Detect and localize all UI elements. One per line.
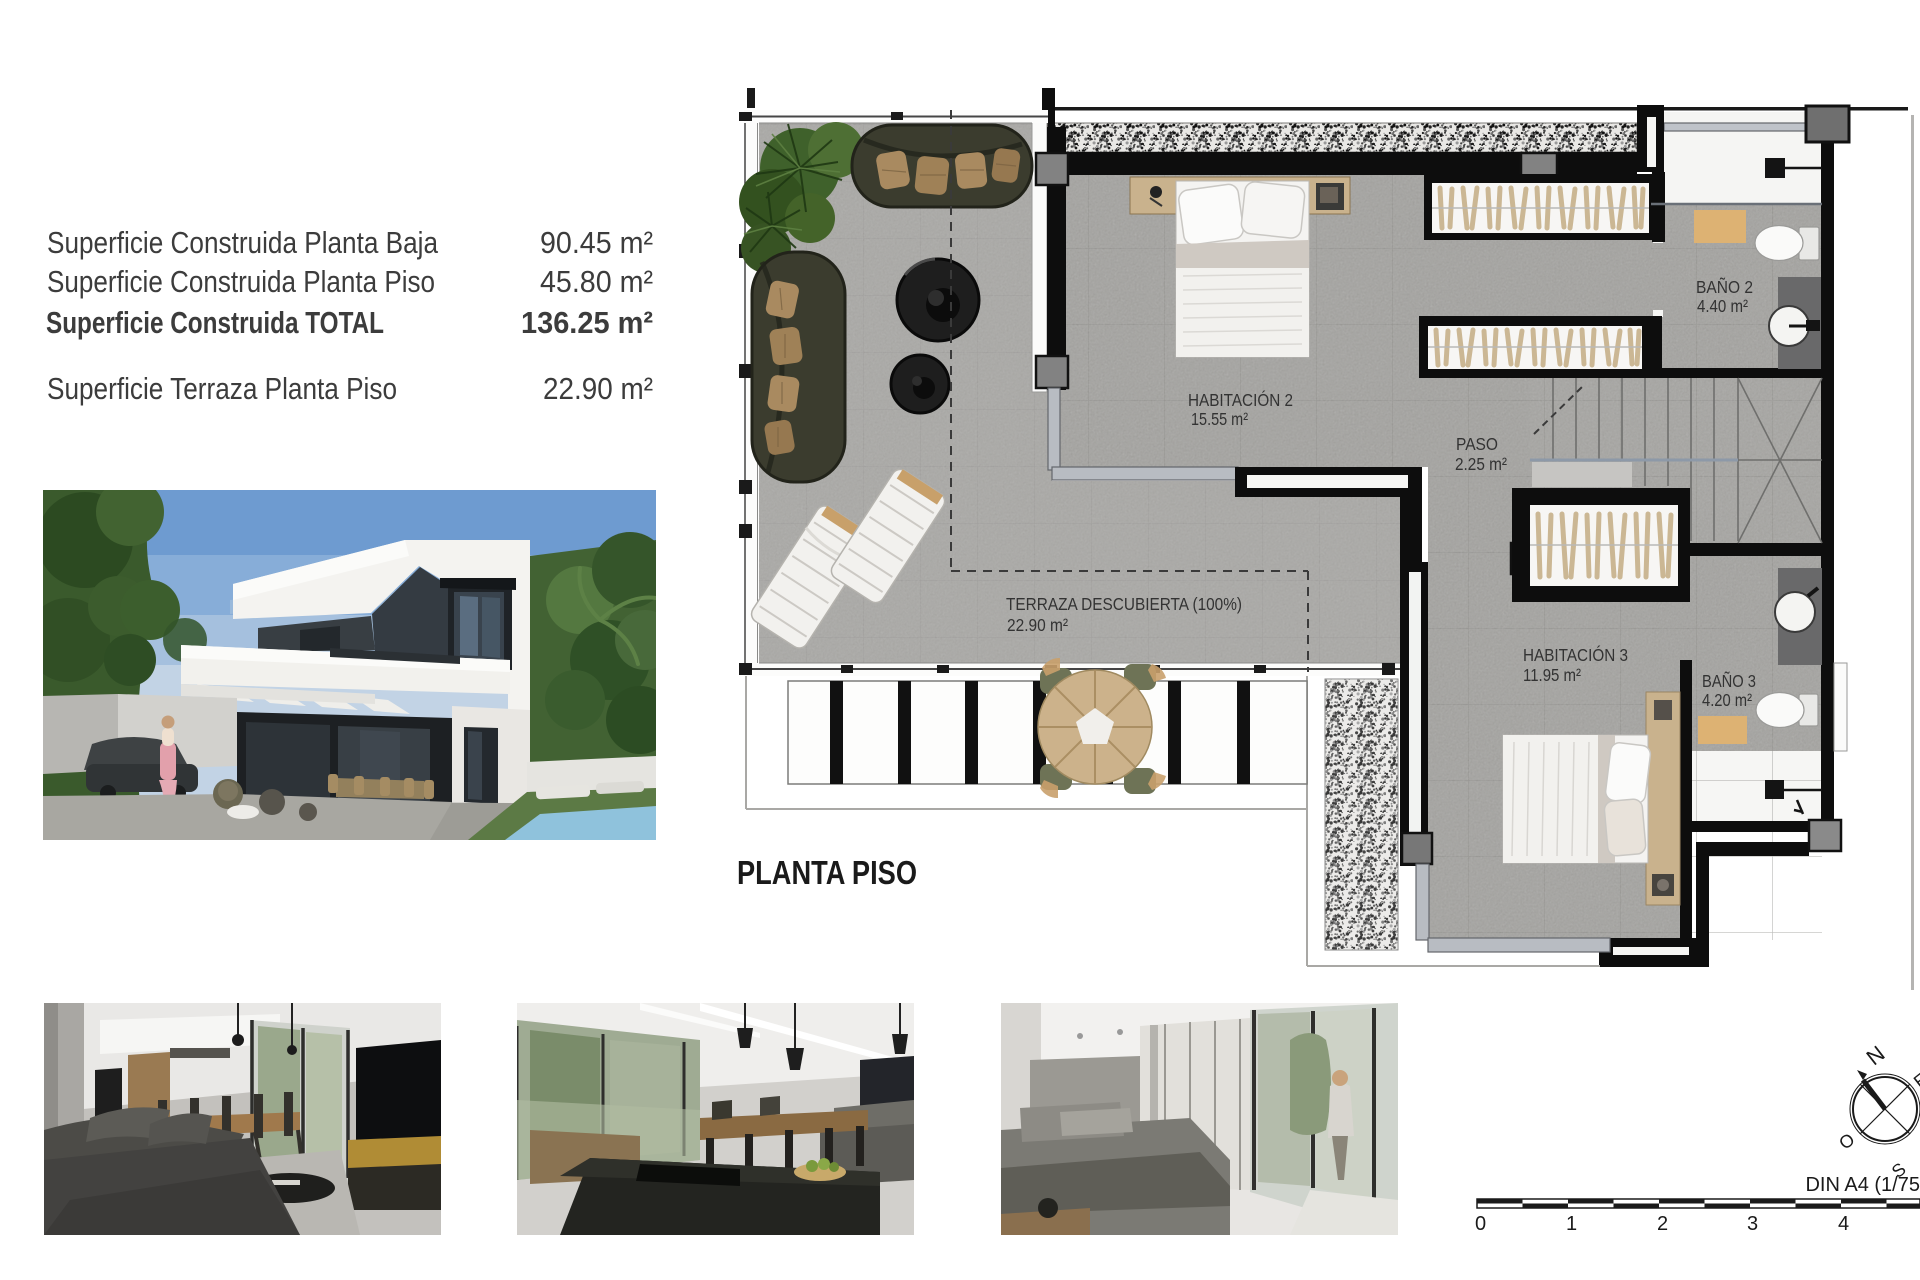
svg-text:4: 4 (1838, 1213, 1849, 1235)
svg-text:PASO: PASO (1456, 434, 1498, 454)
svg-text:2.25 m²: 2.25 m² (1455, 454, 1507, 474)
svg-text:45.80 m²: 45.80 m² (540, 264, 653, 299)
svg-text:Superficie Construida TOTAL: Superficie Construida TOTAL (46, 305, 384, 340)
svg-text:DIN A4 (1/75: DIN A4 (1/75 (1805, 1174, 1920, 1196)
svg-text:PLANTA PISO: PLANTA PISO (737, 854, 917, 891)
svg-text:22.90 m²: 22.90 m² (1007, 615, 1068, 635)
svg-text:Superficie Construida Planta P: Superficie Construida Planta Piso (47, 264, 435, 299)
svg-text:HABITACIÓN 3: HABITACIÓN 3 (1523, 644, 1628, 665)
svg-text:0: 0 (1475, 1213, 1486, 1235)
svg-text:136.25 m²: 136.25 m² (521, 305, 653, 340)
svg-text:HABITACIÓN 2: HABITACIÓN 2 (1188, 389, 1293, 410)
svg-text:4.20 m²: 4.20 m² (1702, 690, 1752, 710)
svg-text:1: 1 (1566, 1213, 1577, 1235)
svg-text:22.90 m²: 22.90 m² (543, 371, 653, 406)
svg-text:2: 2 (1657, 1213, 1668, 1235)
svg-text:3: 3 (1747, 1213, 1758, 1235)
svg-text:90.45 m²: 90.45 m² (540, 225, 653, 260)
svg-text:Superficie Terraza Planta Piso: Superficie Terraza Planta Piso (47, 371, 397, 406)
svg-text:BAÑO 3: BAÑO 3 (1702, 670, 1756, 691)
svg-text:15.55 m²: 15.55 m² (1191, 409, 1248, 429)
svg-text:4.40 m²: 4.40 m² (1697, 296, 1748, 316)
svg-text:TERRAZA DESCUBIERTA (100%): TERRAZA DESCUBIERTA (100%) (1006, 594, 1242, 614)
svg-text:BAÑO 2: BAÑO 2 (1696, 276, 1753, 297)
svg-text:11.95 m²: 11.95 m² (1523, 665, 1581, 685)
svg-text:Superficie Construida Planta B: Superficie Construida Planta Baja (47, 225, 439, 260)
